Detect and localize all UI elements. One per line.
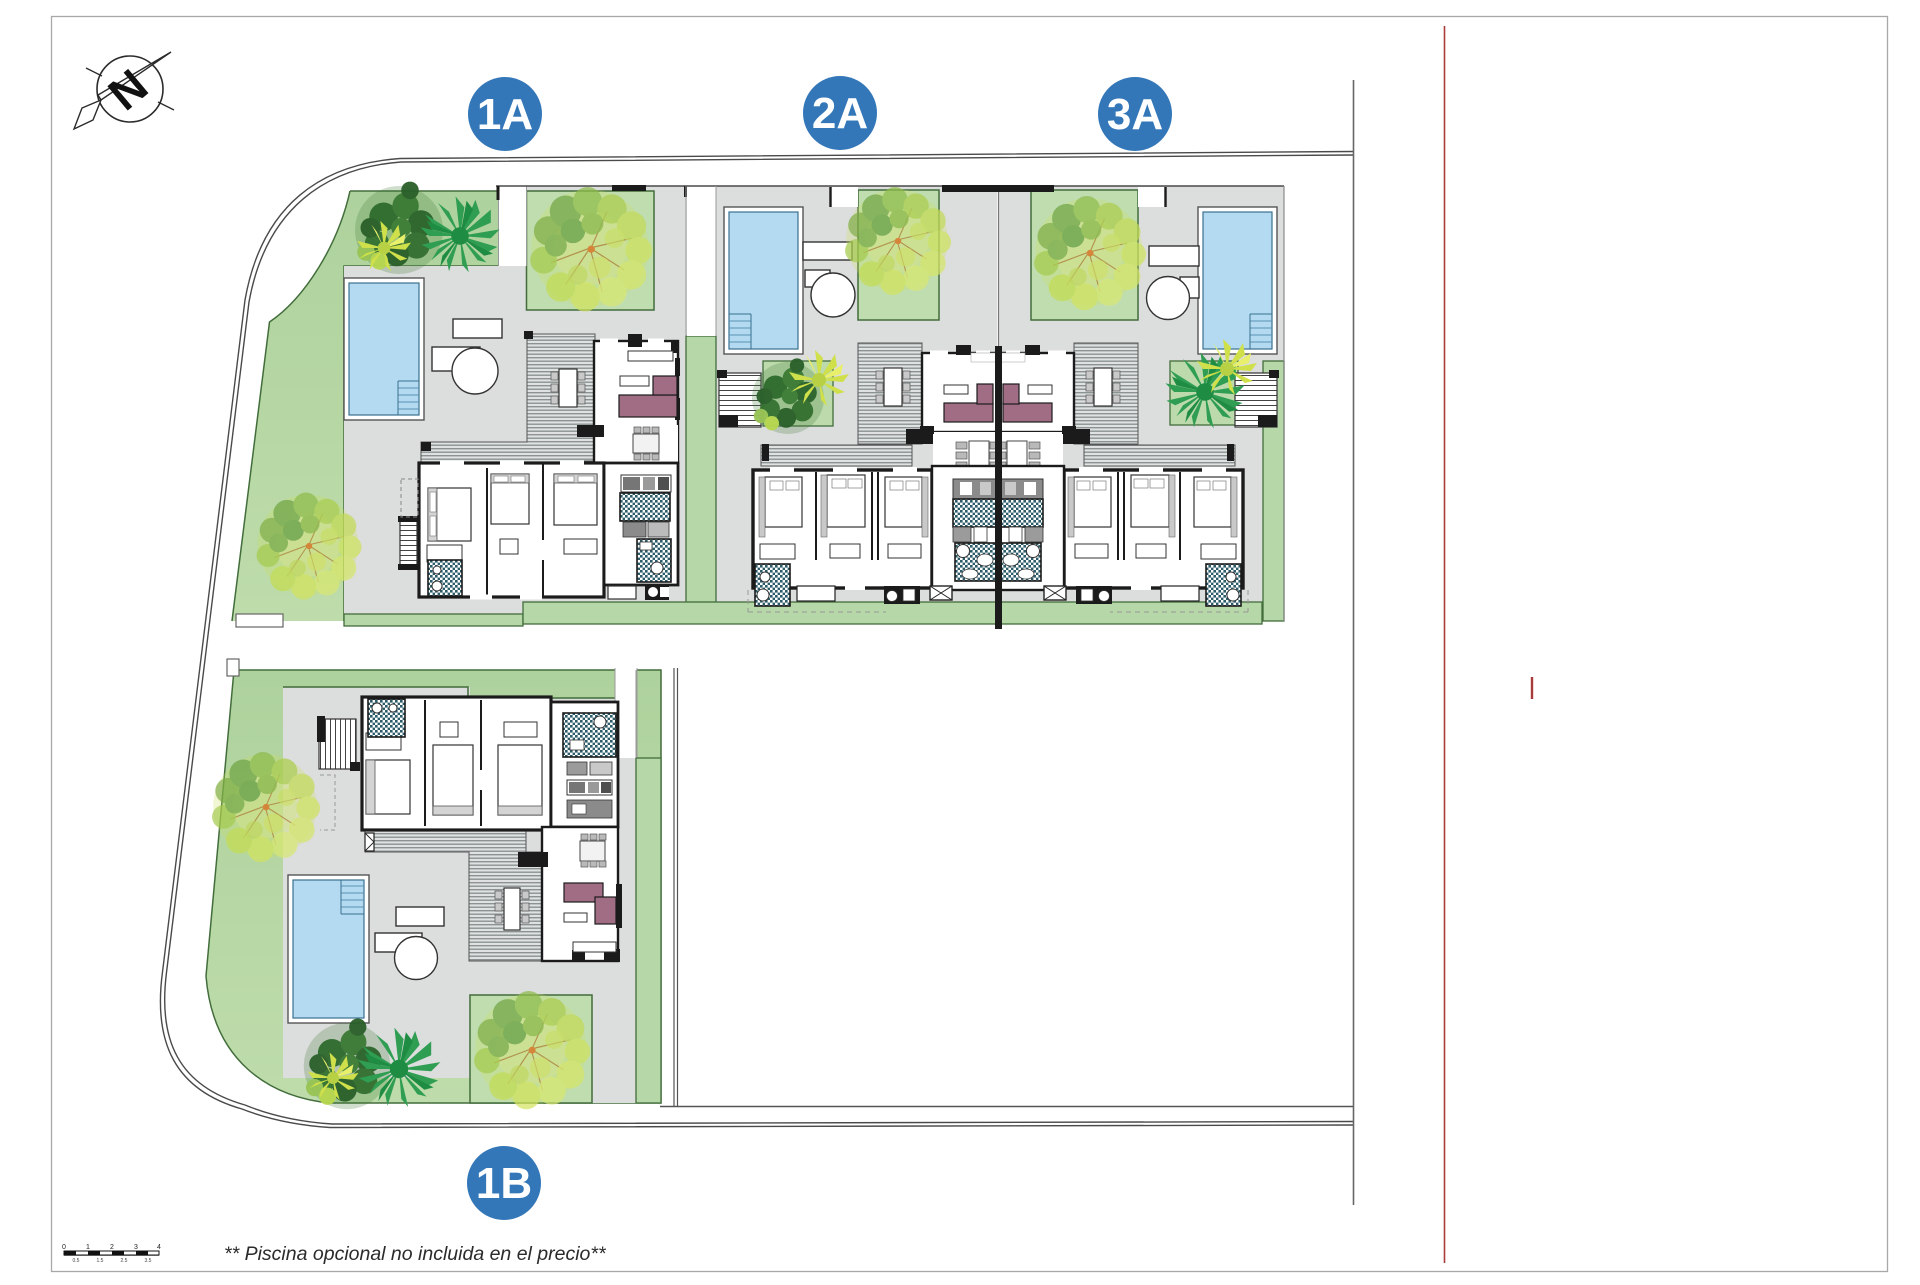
svg-text:1.5: 1.5 [97,1258,104,1264]
svg-text:2A: 2A [812,89,868,138]
svg-text:1B: 1B [476,1159,532,1208]
svg-text:0.5: 0.5 [73,1258,80,1264]
svg-text:2.5: 2.5 [121,1258,128,1264]
svg-text:3.5: 3.5 [145,1258,152,1264]
svg-text:4: 4 [157,1244,161,1251]
svg-text:2: 2 [110,1244,114,1251]
svg-text:0: 0 [62,1244,66,1251]
svg-text:1: 1 [86,1244,90,1251]
svg-text:** Piscina opcional no incluid: ** Piscina opcional no incluida en el pr… [224,1243,607,1265]
svg-text:3A: 3A [1107,90,1163,139]
svg-text:1A: 1A [477,90,533,139]
svg-text:3: 3 [134,1244,138,1251]
